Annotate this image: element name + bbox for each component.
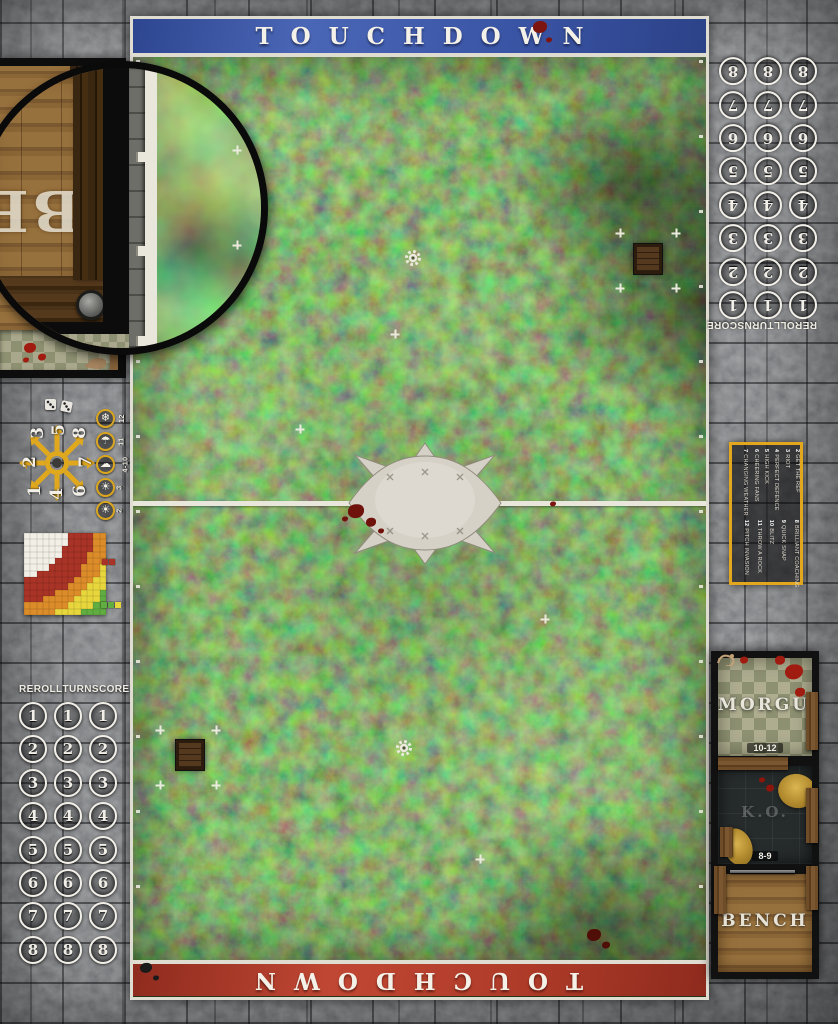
track-number-circle: 8 — [89, 936, 117, 964]
track-number-circle: 6 — [754, 124, 782, 152]
track-number-circle: 1 — [89, 702, 117, 730]
track-row: 555 — [19, 836, 119, 864]
pass-chart-cell — [100, 609, 106, 615]
gear-marker-icon — [395, 739, 413, 757]
dugout-section-range: 10-12 — [718, 743, 812, 753]
track-number-circle: 1 — [789, 291, 817, 319]
track-number-circle: 7 — [789, 91, 817, 119]
grid-cross-mark — [233, 146, 242, 155]
track-number-circle: 6 — [719, 124, 747, 152]
kickoff-column: 2GET THE REF3RIOT4PERFECT DEFENCE5HIGH K… — [740, 449, 802, 516]
grid-cross-mark — [156, 726, 165, 735]
track-row: 777 — [19, 902, 119, 930]
inset-stone-strip — [129, 68, 145, 348]
legend-swatch — [115, 602, 121, 608]
weather-item: ☀2 — [96, 499, 136, 522]
track-row: 666 — [19, 869, 119, 897]
kickoff-row: 3RIOT — [784, 449, 790, 516]
snow-icon: ❄ — [96, 409, 115, 428]
kickoff-row: 12PITCH INVASION — [743, 520, 749, 588]
track-header-label: SCORE — [92, 684, 130, 695]
track-number-circle: 7 — [719, 91, 747, 119]
dugout-section-label: MORGUE — [718, 695, 812, 715]
track-number-circle: 6 — [89, 869, 117, 897]
legend-swatch — [109, 559, 115, 565]
blood-splatter — [775, 656, 785, 665]
track-number-circle: 2 — [89, 735, 117, 763]
sideline-ticks-right — [699, 57, 703, 960]
weather-roll-label: 4-10 — [123, 456, 130, 472]
track-row: 666 — [717, 124, 817, 152]
trapdoor — [634, 244, 662, 274]
porthole-icon — [76, 290, 106, 320]
track-number-circle: 8 — [19, 936, 47, 964]
track-number-circle: 2 — [54, 735, 82, 763]
grid-cross-mark — [476, 855, 485, 864]
scatter-direction-number: 7 — [76, 456, 96, 468]
turn-track-left: REROLLTURNSCORE111222333444555666777888 — [19, 684, 119, 969]
sideline-tick — [136, 152, 146, 162]
inset-frame-band — [103, 68, 129, 324]
track-number-circle: 5 — [789, 158, 817, 186]
scatter-direction-number: 3 — [28, 427, 48, 439]
track-number-circle: 2 — [719, 258, 747, 286]
grid-cross-mark — [541, 615, 550, 624]
dugout-right: MORGUE10-12K.O.8-9BENCH — [711, 651, 819, 979]
kickoff-row: 6CHEERING FANS — [753, 449, 759, 516]
weather-roll-label: 12 — [119, 414, 126, 423]
kickoff-table: 2GET THE REF3RIOT4PERFECT DEFENCE5HIGH K… — [729, 442, 803, 585]
track-number-circle: 3 — [719, 224, 747, 252]
track-header-label: REROLL — [773, 319, 817, 330]
inset-bench-text: BE — [0, 168, 81, 252]
track-header-label: SCORE — [707, 319, 745, 330]
track-number-circle: 5 — [719, 158, 747, 186]
track-row: 888 — [717, 57, 817, 85]
legend-swatch — [101, 602, 107, 608]
track-number-circle: 5 — [54, 836, 82, 864]
track-number-circle: 4 — [19, 802, 47, 830]
wood-plank — [806, 788, 818, 843]
die-icon — [45, 399, 56, 410]
track-row: 222 — [19, 735, 119, 763]
pass-range-chart — [24, 533, 106, 615]
track-row: 333 — [19, 769, 119, 797]
track-number-circle: 4 — [54, 802, 82, 830]
kickoff-table-rows: 2GET THE REF3RIOT4PERFECT DEFENCE5HIGH K… — [740, 449, 802, 584]
track-row: 555 — [717, 158, 817, 186]
scatter-direction-number: 4 — [47, 488, 67, 500]
track-number-circle: 3 — [54, 769, 82, 797]
weather-item: ❄12 — [96, 407, 136, 430]
track-number-circle: 6 — [54, 869, 82, 897]
weather-item: ☀3 — [96, 476, 136, 499]
wood-plank — [806, 866, 818, 910]
weather-roll-label: 3 — [117, 485, 124, 489]
track-number-circle: 6 — [19, 869, 47, 897]
grid-cross-mark — [391, 330, 400, 339]
endzone-banner-bottom-text: TOUCHDOWN — [237, 967, 601, 994]
turn-track-right: REROLLTURNSCORE111222333444555666777888 — [717, 52, 817, 332]
sideline-tick — [136, 246, 146, 256]
weather-roll-label: 2 — [117, 508, 124, 512]
grid-cross-mark — [212, 781, 221, 790]
dugout-range-value: 10-12 — [747, 743, 782, 753]
blood-splatter — [602, 942, 610, 949]
inset-morgue-tiles — [0, 334, 129, 348]
scatter-direction-number: 6 — [70, 485, 90, 497]
die-icon — [60, 400, 73, 413]
kickoff-row: 10BLITZ — [768, 520, 774, 588]
grid-cross-mark — [672, 229, 681, 238]
magnifier-detail-inset: BE — [0, 61, 268, 355]
sideline-tick — [136, 336, 146, 346]
sun-icon: ☀ — [96, 478, 115, 497]
blood-splatter — [366, 518, 376, 527]
weather-roll-label: 11 — [119, 437, 126, 445]
grid-cross-mark — [233, 241, 242, 250]
track-number-circle: 8 — [789, 57, 817, 85]
track-number-circle: 8 — [54, 936, 82, 964]
kickoff-row: 9QUICK SNAP — [780, 520, 786, 588]
track-number-circle: 3 — [789, 224, 817, 252]
track-header: REROLLTURNSCORE — [717, 319, 817, 330]
inset-sideline — [145, 68, 157, 348]
rain-icon: ☂ — [96, 432, 115, 451]
track-number-circle: 4 — [719, 191, 747, 219]
dugout-range-value: 8-9 — [752, 851, 777, 861]
track-number-circle: 7 — [754, 91, 782, 119]
grid-cross-mark — [296, 425, 305, 434]
track-number-circle: 7 — [89, 902, 117, 930]
track-number-circle: 5 — [19, 836, 47, 864]
dugout-section-bench: BENCH — [718, 874, 812, 972]
track-row: 111 — [19, 702, 119, 730]
track-number-circle: 4 — [89, 802, 117, 830]
blood-splatter — [348, 504, 364, 518]
track-number-circle: 4 — [789, 191, 817, 219]
legend-swatch — [108, 602, 114, 608]
kickoff-row: 4PERFECT DEFENCE — [773, 449, 779, 516]
scatter-direction-number: 5 — [49, 424, 69, 436]
track-row: 333 — [717, 224, 817, 252]
grid-cross-mark — [616, 229, 625, 238]
scatter-direction-number: 2 — [20, 456, 40, 468]
track-number-circle: 7 — [19, 902, 47, 930]
inset-grass-shading — [157, 68, 261, 348]
scatter-direction-number: 1 — [25, 485, 45, 497]
track-number-circle: 2 — [789, 258, 817, 286]
weather-item: ☂11 — [96, 430, 136, 453]
kickoff-row: 2GET THE REF — [794, 449, 800, 516]
center-spiked-ball-emblem — [345, 442, 505, 566]
blood-splatter — [795, 688, 805, 697]
blood-splatter — [38, 354, 46, 361]
inset-plank-divider — [73, 68, 103, 280]
pass-chart-legend-top — [102, 559, 115, 565]
track-header-label: TURN — [744, 319, 773, 330]
grid-cross-mark — [672, 284, 681, 293]
wood-plank — [720, 827, 733, 857]
trapdoor — [176, 740, 204, 770]
track-number-circle: 3 — [89, 769, 117, 797]
track-number-circle: 3 — [754, 224, 782, 252]
track-number-circle: 3 — [19, 769, 47, 797]
track-number-circle: 7 — [54, 902, 82, 930]
legend-swatch — [102, 559, 108, 565]
gear-marker-icon — [404, 249, 422, 267]
pass-chart-legend-bottom — [101, 602, 121, 608]
track-number-circle: 1 — [19, 702, 47, 730]
track-number-circle: 1 — [54, 702, 82, 730]
grid-cross-mark — [156, 781, 165, 790]
rat-skeleton-icon — [716, 652, 736, 666]
track-row: 777 — [717, 91, 817, 119]
track-number-circle: 6 — [789, 124, 817, 152]
track-row: 111 — [717, 291, 817, 319]
sun-icon: ☀ — [96, 501, 115, 520]
weather-track: ❄12☂11☁4-10☀3☀2 — [96, 407, 136, 522]
track-number-circle: 2 — [19, 735, 47, 763]
grid-cross-mark — [616, 284, 625, 293]
weather-item: ☁4-10 — [96, 453, 136, 476]
wood-plank — [806, 692, 818, 750]
kickoff-row: 11THROW A ROCK — [756, 520, 762, 588]
track-row: 444 — [717, 191, 817, 219]
track-number-circle: 2 — [754, 258, 782, 286]
scatter-direction-number: 8 — [70, 427, 90, 439]
track-header: REROLLTURNSCORE — [19, 684, 119, 695]
track-number-circle: 8 — [754, 57, 782, 85]
track-header-label: REROLL — [19, 684, 63, 695]
wood-plank — [718, 757, 788, 770]
kickoff-row: 7CHANGING WEATHER — [742, 449, 748, 516]
kickoff-row: 8BRILLIANT COACHING — [793, 520, 799, 588]
track-row: 888 — [19, 936, 119, 964]
blood-bowl-game-mat: TOUCHDOWN — [0, 0, 838, 1024]
track-number-circle: 8 — [719, 57, 747, 85]
rat-skeleton-icon — [88, 358, 106, 369]
blood-splatter — [766, 785, 774, 792]
inset-grass — [157, 68, 261, 348]
metal-rod — [730, 870, 795, 873]
grid-cross-mark — [212, 726, 221, 735]
cloud-icon: ☁ — [96, 455, 115, 474]
endzone-banner-top: TOUCHDOWN — [133, 19, 706, 57]
kickoff-column: 8BRILLIANT COACHING9QUICK SNAP10BLITZ11T… — [740, 520, 802, 588]
track-number-circle: 1 — [754, 291, 782, 319]
track-number-circle: 1 — [719, 291, 747, 319]
track-row: 444 — [19, 802, 119, 830]
blood-splatter — [740, 657, 748, 664]
kickoff-row: 5HIGH KICK — [763, 449, 769, 516]
track-number-circle: 5 — [754, 158, 782, 186]
track-row: 222 — [717, 258, 817, 286]
track-header-label: TURN — [63, 684, 92, 695]
dugout-section-label: BENCH — [718, 911, 812, 931]
track-number-circle: 4 — [754, 191, 782, 219]
endzone-banner-bottom: TOUCHDOWN — [133, 960, 706, 996]
track-number-circle: 5 — [89, 836, 117, 864]
wood-plank — [714, 866, 726, 914]
